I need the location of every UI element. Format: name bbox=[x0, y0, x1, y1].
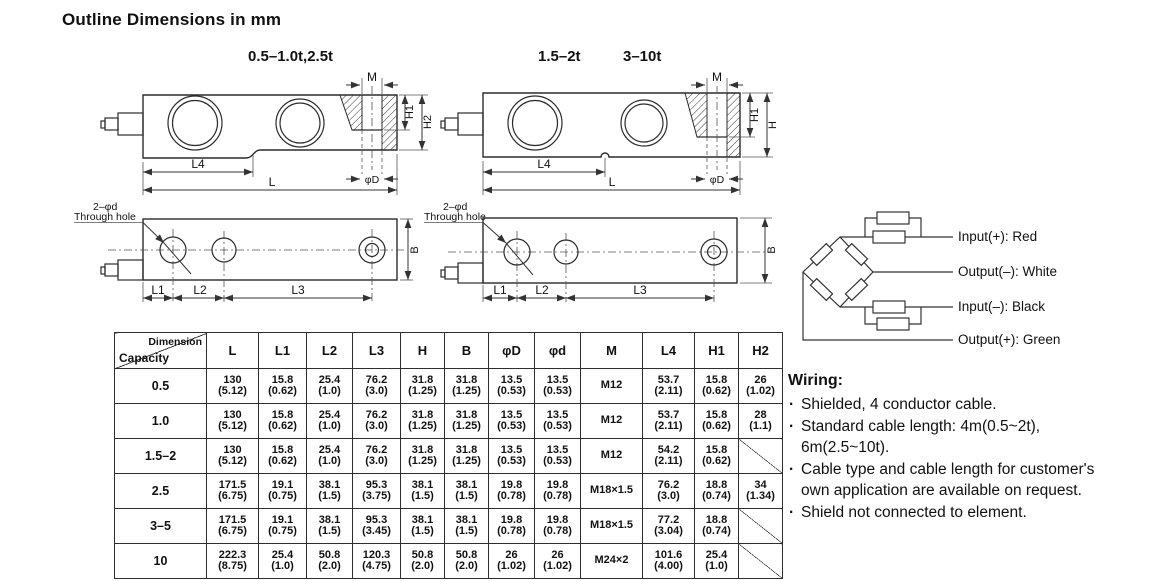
datasheet-page: Outline Dimensions in mm 0.5–1.0t,2.5t 1… bbox=[0, 0, 1164, 581]
dimension-cell: 15.8(0.62) bbox=[259, 439, 307, 474]
wiring-bridge-diagram: Input(+): Red Output(–): White Input(–):… bbox=[795, 195, 1164, 360]
dim-label-h1: H1 bbox=[404, 105, 416, 119]
dim-label-l2: L2 bbox=[193, 283, 207, 297]
dim-label-l: L bbox=[269, 175, 276, 189]
dimension-cell: 130(5.12) bbox=[207, 439, 259, 474]
dimension-cell: 25.4(1.0) bbox=[307, 439, 353, 474]
dim-label-h2: H2 bbox=[422, 115, 434, 129]
caption-side-a: 0.5–1.0t,2.5t bbox=[248, 48, 333, 65]
bridge-circuit bbox=[803, 212, 953, 340]
dimension-cell: 19.1(0.75) bbox=[259, 474, 307, 509]
cable-connector bbox=[101, 113, 143, 135]
corner-header-cell: Dimension Capacity bbox=[115, 333, 207, 369]
dimension-cell: 53.7(2.11) bbox=[643, 404, 695, 439]
corner-label-capacity: Capacity bbox=[119, 351, 169, 365]
dimension-cell: 38.1(1.5) bbox=[401, 474, 445, 509]
dimension-cell bbox=[739, 439, 783, 474]
dimension-cell: 25.4(1.0) bbox=[259, 544, 307, 579]
dimension-cell: M12 bbox=[581, 404, 643, 439]
dimension-cell: M12 bbox=[581, 369, 643, 404]
table-row: 10222.3(8.75)25.4(1.0)50.8(2.0)120.3(4.7… bbox=[115, 544, 783, 579]
table-row: 2.5171.5(6.75)19.1(0.75)38.1(1.5)95.3(3.… bbox=[115, 474, 783, 509]
bridge-diamond bbox=[803, 237, 873, 307]
dimension-cell: 26(1.02) bbox=[535, 544, 581, 579]
dimension-cell: 19.1(0.75) bbox=[259, 509, 307, 544]
wiring-note: Shield not connected to element. bbox=[788, 502, 1118, 524]
dim-label-phi-d: φD bbox=[710, 174, 725, 186]
load-cell-body bbox=[441, 218, 770, 302]
dimension-cell: M12 bbox=[581, 439, 643, 474]
through-hole-label-line2: Through hole bbox=[74, 211, 136, 223]
dimension-cell: 31.8(1.25) bbox=[445, 369, 489, 404]
caption-side-b2: 3–10t bbox=[623, 48, 661, 65]
capacity-cell: 2.5 bbox=[115, 474, 207, 509]
dimension-cell: 28(1.1) bbox=[739, 404, 783, 439]
dim-label-l3: L3 bbox=[291, 283, 305, 297]
dimension-cell: 222.3(8.75) bbox=[207, 544, 259, 579]
column-header-B: B bbox=[445, 333, 489, 369]
dimension-cell: 54.2(2.11) bbox=[643, 439, 695, 474]
dimension-table-header-row: Dimension Capacity LL1L2L3HBφDφdML4H1H2 bbox=[115, 333, 783, 369]
capacity-cell: 10 bbox=[115, 544, 207, 579]
column-header-H2: H2 bbox=[739, 333, 783, 369]
dim-label-l2: L2 bbox=[535, 283, 549, 297]
dimension-cell: 50.8(2.0) bbox=[401, 544, 445, 579]
wiring-note: Shielded, 4 conductor cable. bbox=[788, 394, 1118, 416]
dimension-cell: 15.8(0.62) bbox=[695, 404, 739, 439]
dimension-cell: 15.8(0.62) bbox=[695, 439, 739, 474]
dimension-cell: 25.4(1.0) bbox=[307, 404, 353, 439]
dimension-cell: 26(1.02) bbox=[489, 544, 535, 579]
dimension-cell: 76.2(3.0) bbox=[643, 474, 695, 509]
dimension-cell: 130(5.12) bbox=[207, 404, 259, 439]
dimension-cell: 25.4(1.0) bbox=[695, 544, 739, 579]
load-cell-body bbox=[101, 219, 405, 302]
dim-label-l4: L4 bbox=[191, 157, 205, 171]
compensation-resistor bbox=[877, 318, 909, 330]
column-header-M: M bbox=[581, 333, 643, 369]
dimension-cell: 31.8(1.25) bbox=[445, 439, 489, 474]
dimension-cell: 76.2(3.0) bbox=[353, 404, 401, 439]
dim-label-m: M bbox=[712, 70, 722, 84]
table-row: 0.5130(5.12)15.8(0.62)25.4(1.0)76.2(3.0)… bbox=[115, 369, 783, 404]
dimension-cell bbox=[739, 509, 783, 544]
dimension-cell: M18×1.5 bbox=[581, 509, 643, 544]
dimension-cell: 120.3(4.75) bbox=[353, 544, 401, 579]
cable-connector bbox=[441, 263, 483, 283]
dimension-cell: 50.8(2.0) bbox=[307, 544, 353, 579]
dim-label-l: L bbox=[609, 175, 616, 189]
table-row: 1.0130(5.12)15.8(0.62)25.4(1.0)76.2(3.0)… bbox=[115, 404, 783, 439]
dimension-cell: 95.3(3.45) bbox=[353, 509, 401, 544]
dimension-cell: 15.8(0.62) bbox=[259, 369, 307, 404]
column-header-L1: L1 bbox=[259, 333, 307, 369]
wiring-heading: Wiring: bbox=[788, 372, 1118, 390]
dim-label-l1: L1 bbox=[151, 283, 165, 297]
compensation-resistor bbox=[873, 301, 905, 313]
dimension-cell: 19.8(0.78) bbox=[489, 474, 535, 509]
dimension-cell: 25.4(1.0) bbox=[307, 369, 353, 404]
dimension-cell: 19.8(0.78) bbox=[489, 509, 535, 544]
dim-label-h1: H1 bbox=[749, 108, 761, 122]
dimension-cell: 130(5.12) bbox=[207, 369, 259, 404]
compensation-resistor bbox=[877, 212, 909, 224]
dimension-cell: 31.8(1.25) bbox=[401, 369, 445, 404]
dimension-cell: 13.5(0.53) bbox=[535, 369, 581, 404]
column-header-φD: φD bbox=[489, 333, 535, 369]
side-view-a-drawing: M H1 H2 L4 L φD bbox=[60, 70, 440, 205]
corner-label-dimension: Dimension bbox=[148, 336, 202, 348]
dimension-cell: 171.5(6.75) bbox=[207, 509, 259, 544]
dimension-cell: 31.8(1.25) bbox=[401, 439, 445, 474]
dimension-cell: 15.8(0.62) bbox=[695, 369, 739, 404]
wiring-section: Wiring: Shielded, 4 conductor cable.Stan… bbox=[788, 372, 1118, 523]
dimension-cell: 13.5(0.53) bbox=[489, 439, 535, 474]
table-row: 3–5171.5(6.75)19.1(0.75)38.1(1.5)95.3(3.… bbox=[115, 509, 783, 544]
wiring-notes: Shielded, 4 conductor cable.Standard cab… bbox=[788, 394, 1118, 523]
dimension-cell: 13.5(0.53) bbox=[535, 439, 581, 474]
table-row: 1.5–2130(5.12)15.8(0.62)25.4(1.0)76.2(3.… bbox=[115, 439, 783, 474]
strain-gauge-resistors bbox=[810, 244, 867, 301]
capacity-cell: 1.0 bbox=[115, 404, 207, 439]
dimension-cell: 18.8(0.74) bbox=[695, 509, 739, 544]
through-hole-label-line2: Through hole bbox=[424, 211, 486, 223]
dimension-cell: 31.8(1.25) bbox=[445, 404, 489, 439]
dimension-cell: 95.3(3.75) bbox=[353, 474, 401, 509]
load-cell-body bbox=[101, 86, 397, 174]
dim-label-h: H bbox=[767, 121, 779, 129]
dim-label-l1: L1 bbox=[493, 283, 507, 297]
dimension-cell: 13.5(0.53) bbox=[535, 404, 581, 439]
dimension-cell: 171.5(6.75) bbox=[207, 474, 259, 509]
dimension-cell: 38.1(1.5) bbox=[307, 509, 353, 544]
dimension-cell: 31.8(1.25) bbox=[401, 404, 445, 439]
dimension-cell: 19.8(0.78) bbox=[535, 474, 581, 509]
dim-label-phi-d: φD bbox=[365, 174, 380, 186]
dimension-cell: 38.1(1.5) bbox=[445, 509, 489, 544]
dimension-cell: 19.8(0.78) bbox=[535, 509, 581, 544]
load-cell-body bbox=[441, 86, 740, 174]
dimension-cell: 13.5(0.53) bbox=[489, 369, 535, 404]
dimension-cell: 76.2(3.0) bbox=[353, 369, 401, 404]
wire-label-output-minus: Output(–): White bbox=[958, 264, 1057, 279]
column-header-L3: L3 bbox=[353, 333, 401, 369]
dimension-cell: 76.2(3.0) bbox=[353, 439, 401, 474]
column-header-H1: H1 bbox=[695, 333, 739, 369]
dimension-cell: 38.1(1.5) bbox=[307, 474, 353, 509]
dim-label-l4: L4 bbox=[537, 157, 551, 171]
wiring-note: Cable type and cable length for customer… bbox=[788, 459, 1118, 502]
dimension-cell: M18×1.5 bbox=[581, 474, 643, 509]
caption-side-b1: 1.5–2t bbox=[538, 48, 581, 65]
capacity-cell: 0.5 bbox=[115, 369, 207, 404]
top-view-b-drawing: 2–φd Through hole B L1 L2 L3 bbox=[420, 195, 790, 320]
dim-label-b: B bbox=[766, 246, 778, 253]
column-header-H: H bbox=[401, 333, 445, 369]
dimension-cell: 18.8(0.74) bbox=[695, 474, 739, 509]
dimension-cell: 77.2(3.04) bbox=[643, 509, 695, 544]
dimension-table-body: 0.5130(5.12)15.8(0.62)25.4(1.0)76.2(3.0)… bbox=[115, 369, 783, 579]
capacity-cell: 3–5 bbox=[115, 509, 207, 544]
compensation-resistor bbox=[873, 231, 905, 243]
dimension-cell: M24×2 bbox=[581, 544, 643, 579]
wire-label-input-plus: Input(+): Red bbox=[958, 229, 1037, 244]
column-header-L4: L4 bbox=[643, 333, 695, 369]
column-header-L2: L2 bbox=[307, 333, 353, 369]
dimension-cell: 50.8(2.0) bbox=[445, 544, 489, 579]
dim-label-l3: L3 bbox=[633, 283, 647, 297]
dimension-cell: 53.7(2.11) bbox=[643, 369, 695, 404]
wire-label-output-plus: Output(+): Green bbox=[958, 332, 1060, 347]
column-header-φd: φd bbox=[535, 333, 581, 369]
column-header-L: L bbox=[207, 333, 259, 369]
dimension-cell: 101.6(4.00) bbox=[643, 544, 695, 579]
bridge-wire-labels: Input(+): Red Output(–): White Input(–):… bbox=[958, 229, 1060, 347]
dimension-cell: 38.1(1.5) bbox=[445, 474, 489, 509]
page-title: Outline Dimensions in mm bbox=[62, 10, 281, 30]
dimension-cell: 34(1.34) bbox=[739, 474, 783, 509]
dimension-cell: 38.1(1.5) bbox=[401, 509, 445, 544]
wiring-note: Standard cable length: 4m(0.5~2t), 6m(2.… bbox=[788, 416, 1118, 459]
top-view-a-drawing: 2–φd Through hole B L1 L2 L3 bbox=[60, 195, 440, 320]
wire-label-input-minus: Input(–): Black bbox=[958, 299, 1045, 314]
dimension-table: Dimension Capacity LL1L2L3HBφDφdML4H1H2 … bbox=[114, 332, 783, 579]
dimension-cell: 13.5(0.53) bbox=[489, 404, 535, 439]
dimension-cell: 26(1.02) bbox=[739, 369, 783, 404]
capacity-cell: 1.5–2 bbox=[115, 439, 207, 474]
cable-connector bbox=[441, 113, 483, 135]
side-view-b-drawing: M H1 H L4 L φD bbox=[440, 70, 790, 205]
dimension-cell bbox=[739, 544, 783, 579]
dim-label-m: M bbox=[367, 70, 377, 84]
cable-connector bbox=[101, 260, 143, 280]
dimension-cell: 15.8(0.62) bbox=[259, 404, 307, 439]
